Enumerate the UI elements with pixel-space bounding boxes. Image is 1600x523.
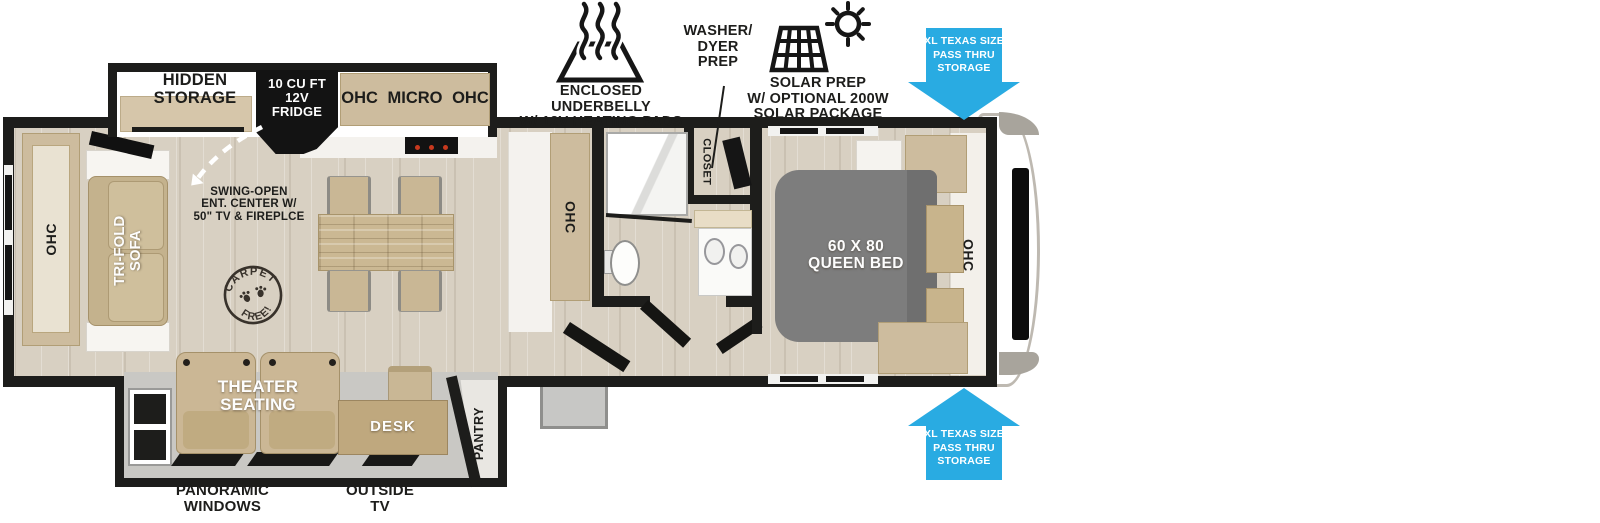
pass-thru-top-label: XL TEXAS SIZE PASS THRU STORAGE	[908, 35, 1020, 76]
desk-label: DESK	[370, 419, 416, 435]
pass-thru-arrow-top: XL TEXAS SIZE PASS THRU STORAGE	[908, 28, 1020, 120]
carpet-free-stamp: CARPET FREE!	[215, 257, 291, 333]
theater-seat-left-cupholder-2	[243, 359, 250, 366]
solar-label: SOLAR PREP W/ OPTIONAL 200W SOLAR PACKAG…	[742, 76, 894, 123]
shower	[606, 132, 688, 216]
bedroom-door-jamb	[752, 306, 762, 334]
theater-seat-right-cupholder	[269, 359, 276, 366]
hidden-storage-label: HIDDEN STORAGE	[125, 72, 265, 108]
panoramic-window-pane-2	[134, 430, 166, 460]
bedroom-ohc-label: OHC	[961, 239, 976, 272]
dinette-chair-2	[398, 176, 442, 218]
entry-step	[540, 387, 608, 429]
front-cap-trim-bottom	[999, 352, 1039, 375]
panoramic-windows-caption: PANORAMIC WINDOWS	[150, 483, 295, 515]
paw-print-2	[255, 286, 266, 298]
queen-bed-label: 60 X 80 QUEEN BED	[808, 239, 904, 272]
pantry-label: PANTRY	[472, 408, 485, 461]
slide-window-slit-2	[247, 452, 339, 466]
desk: DESK	[338, 400, 448, 455]
bedroom-top-window-pane-1	[780, 128, 818, 134]
closet-label: CLOSET	[699, 138, 711, 185]
theater-seat-left-cushion	[183, 411, 249, 449]
toilet-bowl	[610, 240, 640, 286]
svg-text:FREE!: FREE!	[237, 301, 277, 326]
rear-window-pane-2	[5, 245, 12, 300]
solar-icon	[762, 0, 874, 78]
dinette-chair-4	[398, 270, 442, 312]
sofa-label-box: TRI-FOLD SOFA	[86, 176, 170, 326]
theater-seat-right-cushion	[269, 411, 335, 449]
hidden-storage-counter-edge	[132, 127, 244, 132]
vanity-sink-1	[704, 238, 725, 265]
pantry-label-box: PANTRY	[444, 396, 514, 472]
underbelly-icon	[548, 0, 652, 84]
kitchen-overhead-label: OHC MICRO OHC	[341, 90, 489, 108]
outside-tv-caption: OUTSIDE TV	[330, 483, 430, 515]
closet-label-box: CLOSET	[683, 130, 727, 194]
kitchen-counter-right	[508, 132, 552, 332]
rear-window-pane-1	[5, 175, 12, 230]
slide-window-slit-3	[362, 454, 420, 466]
ent-center-label: SWING-OPEN ENT. CENTER W/ 50" TV & FIREP…	[170, 186, 328, 223]
underbelly-label: ENCLOSED UNDERBELLY W/ 12V HEATING PADS	[510, 84, 692, 131]
bedroom-ohc-label-box: OHC	[950, 170, 986, 340]
fridge-label: 10 CU FT 12V FRIDGE	[256, 77, 338, 119]
slide-window-slit-1	[171, 452, 245, 466]
bedroom-bottom-window-pane-1	[780, 376, 818, 382]
dinette-chair-3	[327, 270, 371, 312]
theater-seating-label: THEATER SEATING	[178, 378, 338, 415]
dinette-table	[318, 214, 454, 271]
rear-ohc-label: OHC	[44, 223, 59, 256]
kitchen-ohc-label-box: OHC	[550, 133, 590, 301]
carpet-stamp-bottom-text: FREE!	[237, 301, 277, 326]
theater-seat-left-cupholder	[183, 359, 190, 366]
bathroom-left-wall	[592, 117, 604, 307]
washer-dryer-label: WASHER/ DYER PREP	[672, 24, 764, 71]
cooktop-burners	[415, 145, 448, 150]
front-window	[1012, 168, 1029, 340]
kitchen-ohc-label: OHC	[563, 201, 578, 234]
panoramic-window-pane-1	[134, 394, 166, 424]
kitchen-overhead-cabinet: OHC MICRO OHC	[340, 73, 490, 126]
bedroom-top-window-pane-2	[826, 128, 864, 134]
theater-seat-right-cupholder-2	[329, 359, 336, 366]
bedroom-bottom-window-pane-2	[826, 376, 864, 382]
rv-floorplan-diagram: OHC TRI-FOLD SOFA OHC	[0, 0, 1600, 523]
queen-bed: 60 X 80 QUEEN BED	[775, 170, 937, 342]
vanity-counter	[694, 210, 752, 228]
rear-ohc-label-box: OHC	[22, 133, 80, 346]
dinette-chair-1	[327, 176, 371, 218]
paw-print-1	[238, 289, 253, 304]
pass-thru-bottom-label: XL TEXAS SIZE PASS THRU STORAGE	[908, 428, 1020, 469]
tri-fold-sofa-label: TRI-FOLD SOFA	[112, 216, 144, 286]
vanity-sink-2	[729, 244, 748, 269]
sofa-end-table-bottom	[86, 322, 170, 352]
pass-thru-arrow-bottom: XL TEXAS SIZE PASS THRU STORAGE	[908, 388, 1020, 480]
closet-bottom-wall	[684, 195, 762, 204]
